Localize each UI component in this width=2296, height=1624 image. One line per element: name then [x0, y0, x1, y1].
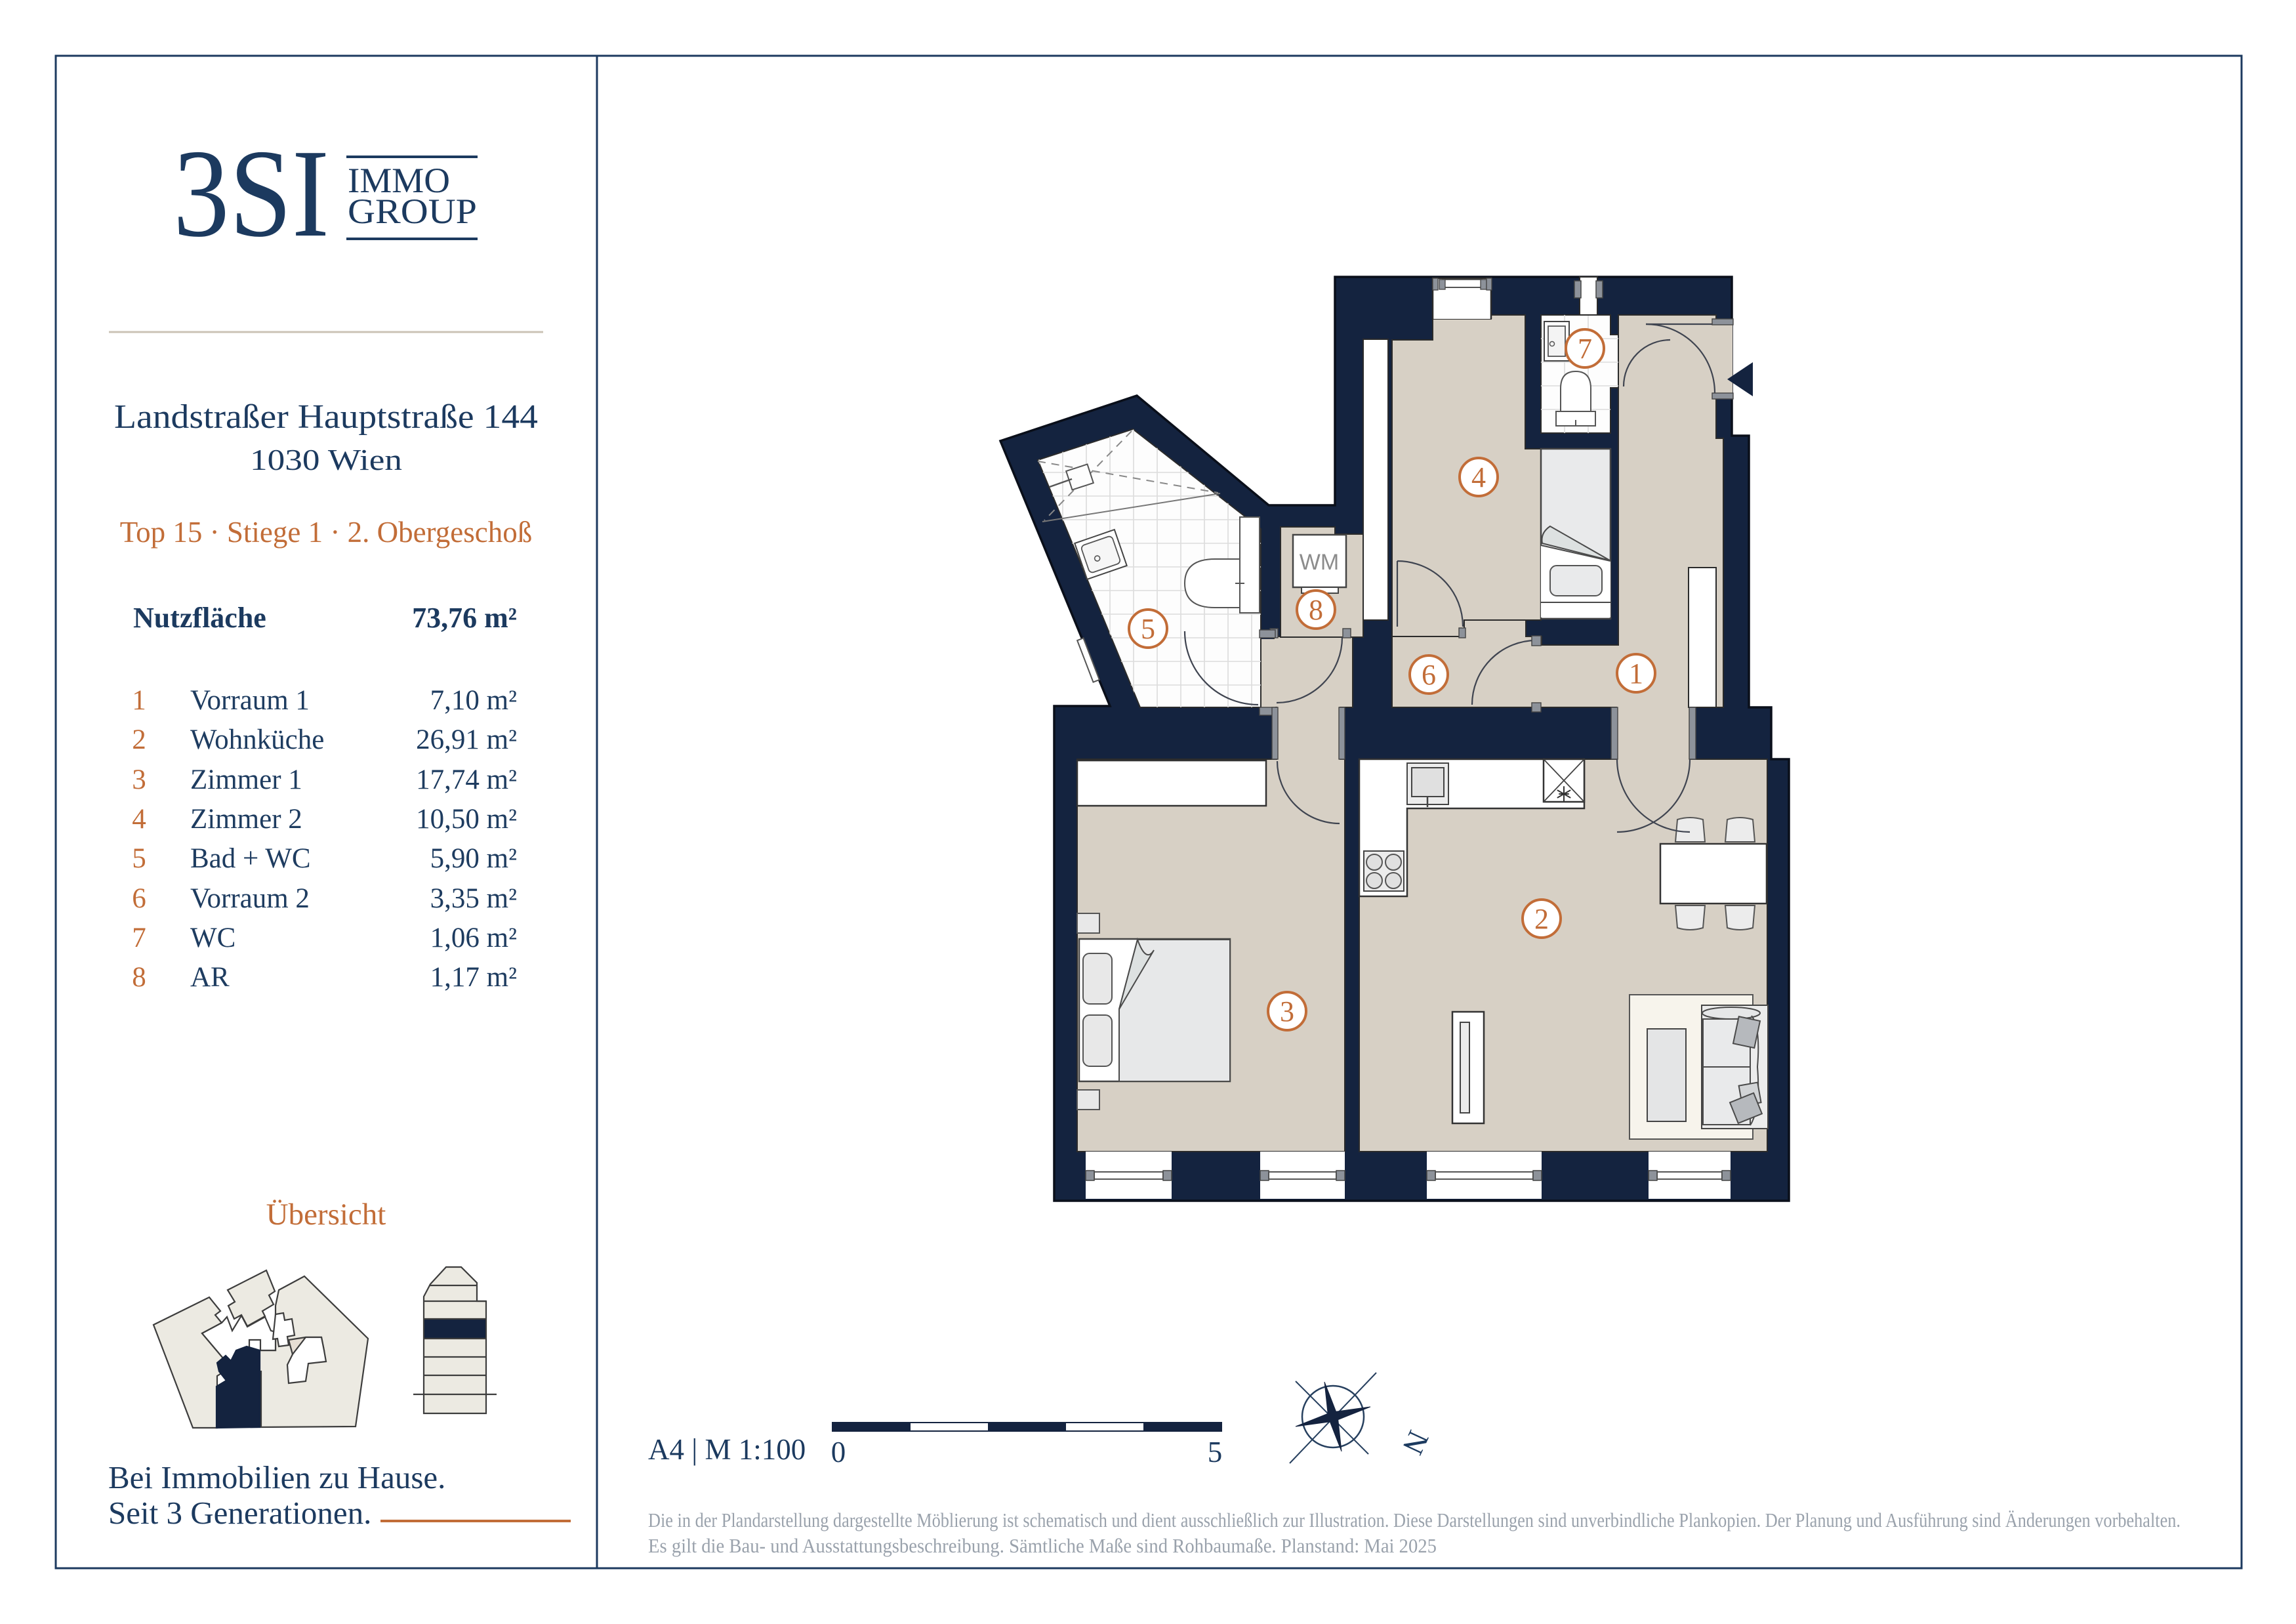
svg-text:7: 7: [132, 923, 146, 953]
svg-text:2: 2: [1534, 903, 1549, 935]
svg-text:Übersicht: Übersicht: [266, 1197, 386, 1232]
svg-text:Top 15 · Stiege 1 · 2. Oberges: Top 15 · Stiege 1 · 2. Obergeschoß: [120, 516, 532, 549]
svg-text:3: 3: [1280, 995, 1294, 1028]
svg-text:5: 5: [132, 843, 146, 874]
svg-text:1030 Wien: 1030 Wien: [250, 443, 402, 476]
svg-text:Zimmer 2: Zimmer 2: [190, 804, 302, 835]
svg-text:6: 6: [132, 883, 146, 914]
svg-text:3SI: 3SI: [173, 123, 329, 263]
svg-text:Vorraum 1: Vorraum 1: [190, 685, 310, 716]
svg-text:4: 4: [1471, 461, 1486, 493]
svg-text:2: 2: [132, 724, 146, 755]
svg-text:WM: WM: [1300, 550, 1339, 575]
svg-text:1: 1: [132, 685, 146, 716]
svg-text:Zimmer 1: Zimmer 1: [190, 764, 302, 795]
svg-text:5,90 m²: 5,90 m²: [430, 843, 517, 874]
svg-text:A4 | M 1:100: A4 | M 1:100: [648, 1433, 806, 1466]
svg-text:8: 8: [132, 962, 146, 993]
svg-text:5: 5: [1141, 613, 1155, 645]
svg-text:6: 6: [1422, 659, 1436, 691]
svg-text:0: 0: [831, 1436, 846, 1468]
svg-text:26,91 m²: 26,91 m²: [416, 724, 517, 755]
svg-text:Bad + WC: Bad + WC: [190, 843, 311, 874]
svg-text:1: 1: [1629, 657, 1643, 690]
svg-text:AR: AR: [190, 962, 230, 993]
svg-text:3,35 m²: 3,35 m²: [430, 883, 517, 914]
svg-text:Bei Immobilien zu Hause.: Bei Immobilien zu Hause.: [108, 1459, 445, 1495]
svg-text:Nutzfläche: Nutzfläche: [133, 602, 266, 634]
svg-text:Wohnküche: Wohnküche: [190, 724, 324, 755]
svg-text:73,76 m²: 73,76 m²: [412, 602, 517, 634]
svg-text:WC: WC: [190, 923, 236, 953]
svg-text:7: 7: [1578, 333, 1592, 365]
svg-text:10,50 m²: 10,50 m²: [416, 804, 517, 835]
svg-text:Landstraßer Hauptstraße 144: Landstraßer Hauptstraße 144: [114, 398, 538, 436]
svg-text:N: N: [1396, 1426, 1435, 1460]
svg-text:7,10 m²: 7,10 m²: [430, 685, 517, 716]
svg-text:8: 8: [1309, 594, 1323, 626]
svg-text:1,17 m²: 1,17 m²: [430, 962, 517, 993]
svg-text:1,06 m²: 1,06 m²: [430, 923, 517, 953]
svg-text:5: 5: [1208, 1436, 1223, 1468]
svg-text:Die in der Plandarstellung dar: Die in der Plandarstellung dargestellte …: [648, 1509, 2181, 1531]
svg-text:Vorraum 2: Vorraum 2: [190, 883, 310, 914]
svg-text:3: 3: [132, 764, 146, 795]
svg-text:4: 4: [132, 804, 146, 835]
svg-text:17,74 m²: 17,74 m²: [416, 764, 517, 795]
svg-text:GROUP: GROUP: [348, 192, 477, 231]
svg-text:Es gilt die Bau- und Ausstattu: Es gilt die Bau- und Ausstattungsbeschre…: [648, 1534, 1437, 1557]
svg-text:Seit 3 Generationen.: Seit 3 Generationen.: [108, 1495, 371, 1531]
